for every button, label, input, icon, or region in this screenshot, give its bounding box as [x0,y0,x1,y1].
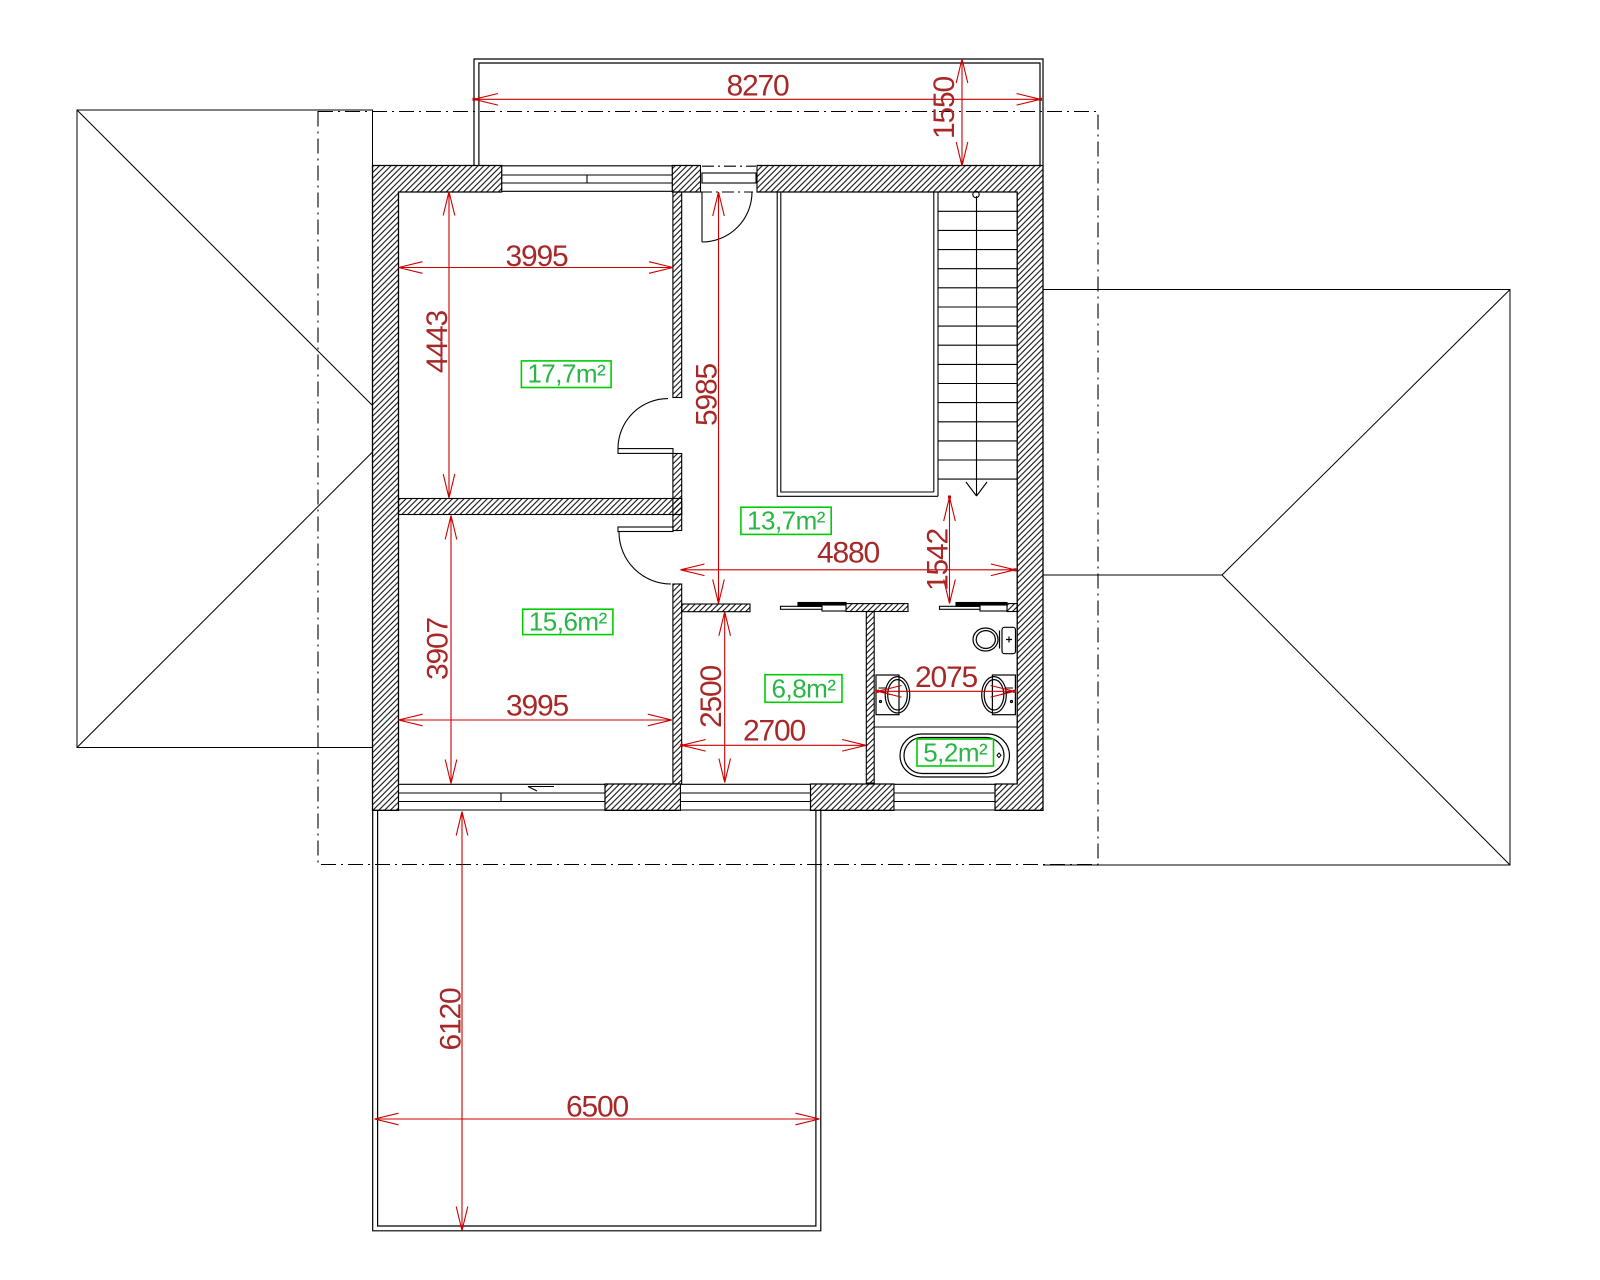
svg-text:8270: 8270 [727,70,789,103]
svg-text:2075: 2075 [915,661,977,694]
svg-text:6500: 6500 [566,1091,628,1124]
svg-text:15,6m²: 15,6m² [529,607,608,637]
svg-text:6,8m²: 6,8m² [772,674,837,704]
svg-text:3907: 3907 [422,618,455,680]
svg-text:2500: 2500 [695,666,728,728]
svg-text:17,7m²: 17,7m² [527,359,606,389]
svg-text:5,2m²: 5,2m² [923,738,988,768]
svg-text:1542: 1542 [922,529,955,591]
svg-text:13,7m²: 13,7m² [747,506,826,536]
svg-text:3995: 3995 [506,240,568,273]
svg-text:1550: 1550 [928,77,961,139]
svg-text:4443: 4443 [421,311,454,373]
svg-text:4880: 4880 [817,537,879,570]
svg-text:5985: 5985 [691,364,724,426]
svg-text:2700: 2700 [743,715,805,748]
svg-text:6120: 6120 [435,988,468,1050]
svg-text:3995: 3995 [506,690,568,723]
